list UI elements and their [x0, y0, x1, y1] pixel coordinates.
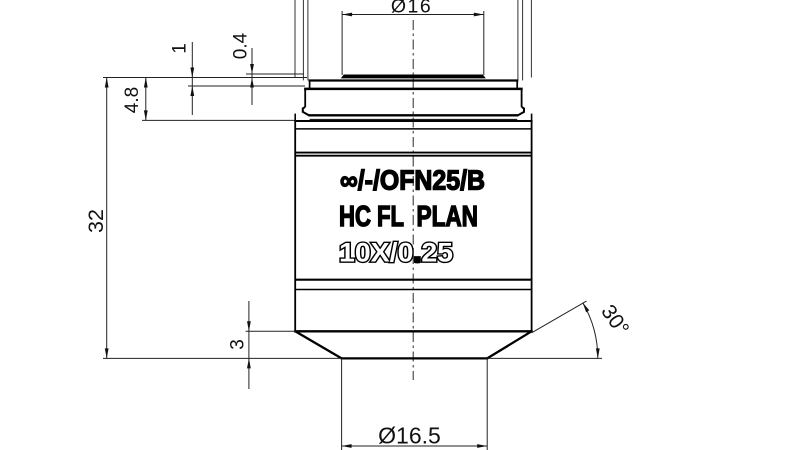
svg-text:∞/-/OFN25/B: ∞/-/OFN25/B [340, 165, 485, 196]
svg-text:PLAN: PLAN [417, 201, 479, 233]
svg-text:32: 32 [84, 209, 108, 233]
svg-text:Ø16.5: Ø16.5 [378, 423, 441, 449]
svg-text:4.8: 4.8 [122, 87, 143, 113]
svg-text:3: 3 [228, 339, 249, 350]
svg-text:10X/0.25: 10X/0.25 [339, 238, 453, 268]
svg-text:HC FL: HC FL [339, 201, 404, 233]
svg-text:Ø16: Ø16 [391, 0, 432, 18]
svg-text:0.4: 0.4 [231, 32, 252, 59]
svg-text:1: 1 [170, 43, 191, 54]
